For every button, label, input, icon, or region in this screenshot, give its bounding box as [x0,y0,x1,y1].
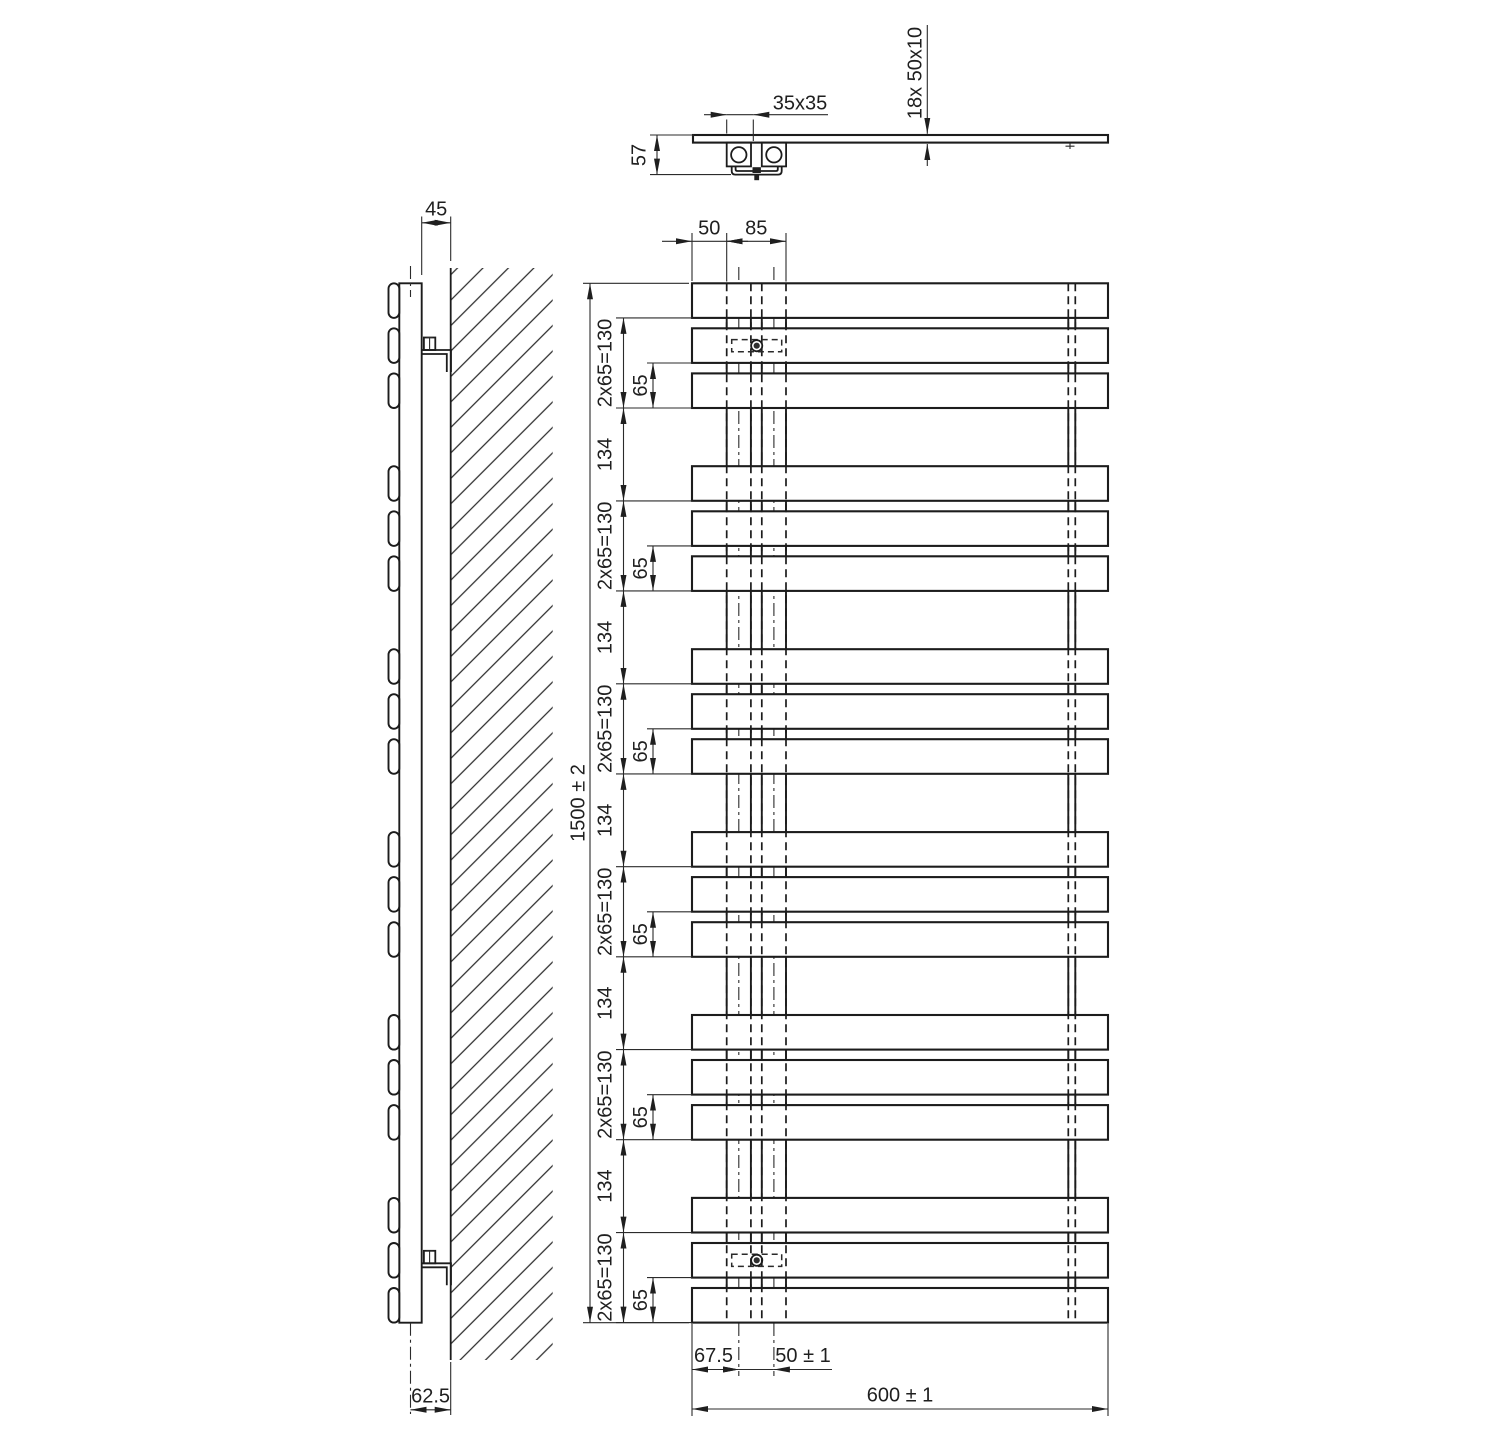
radiator-bar-side [389,556,400,591]
front-view-bars [692,283,1108,1322]
dim-bracket-height-label: 57 [629,144,651,166]
radiator-bar-front [692,832,1108,867]
radiator-bar-front [692,649,1108,684]
radiator-bar-side [389,922,400,957]
dim-group-span-label: 2x65=130 [595,502,617,590]
radiator-bar-front [692,283,1108,318]
dim-axis-wall-offset: 62.5 [411,1362,451,1415]
dim-axis-spacing-label: 50 ± 1 [775,1345,830,1367]
dim-group-gap-label: 134 [595,987,617,1020]
radiator-bar-front [692,556,1108,591]
dim-group-span-label: 2x65=130 [595,319,617,407]
dim-bar-pitch-label: 65 [630,1289,652,1311]
dim-group-gap-label: 134 [595,1169,617,1202]
front-view-tubes-hidden [727,283,1076,1322]
radiator-bar-side [389,877,400,912]
side-bracket-screw-detail [427,1251,433,1264]
dim-edge-to-axis-label: 67.5 [694,1345,733,1367]
dim-chain: 2x65=1301342x65=1301342x65=1301342x65=13… [595,318,693,1323]
side-bracket-screw-detail [427,338,433,351]
dim-axis-wall-offset-label: 62.5 [411,1386,450,1408]
dim-bar-section: 18x 50x10 [905,25,928,166]
radiator-bar-front [692,1288,1108,1323]
dim-tube-zone-label: 85 [745,218,767,240]
radiator-bar-side [389,1288,400,1323]
radiator-bar-side [389,832,400,867]
dim-bar-pitch-label: 65 [630,1106,652,1128]
radiator-bar-side [389,1060,400,1095]
dim-total-width-label: 600 ± 1 [867,1385,934,1407]
radiator-bar-front [692,511,1108,546]
dim-total-height: 1500 ± 2 [568,283,690,1322]
radiator-bar-front [692,466,1108,501]
radiator-bar-side [389,373,400,408]
dim-bar-section-label: 18x 50x10 [905,27,927,119]
wall-hatching [451,268,553,1360]
drawing-canvas: 57 35x35 18x 50x10 [0,0,1500,1437]
bracket-screw [753,167,761,173]
dim-tube-size: 35x35 [704,93,828,142]
radiator-bar-side [389,1198,400,1233]
radiator-bar-side [389,511,400,546]
radiator-bar-side [389,1105,400,1140]
drawing-page: 57 35x35 18x 50x10 [0,0,1500,1437]
dim-total-height-label: 1500 ± 2 [568,764,590,842]
dim-group-span-label: 2x65=130 [595,685,617,773]
dim-group-gap-label: 134 [595,804,617,837]
top-view-bar-plate [693,135,1108,143]
dim-bar-pitch-label: 65 [630,740,652,762]
side-wall-bracket-inner [422,354,447,372]
side-view: 45 62.5 [389,199,553,1416]
dim-tube-wall-gap-label: 45 [425,199,447,221]
dim-bar-pitch-label: 65 [630,557,652,579]
dim-bar-pitch-label: 65 [630,923,652,945]
side-view-collector-tube [399,283,421,1322]
radiator-bar-side [389,1243,400,1278]
dim-group-span-label: 2x65=130 [595,868,617,956]
bracket-screw-tip [754,175,759,181]
dim-tube-wall-gap: 45 [422,199,451,276]
side-view-wall-brackets [422,338,451,1286]
radiator-bar-front [692,1060,1108,1095]
front-bracket-screw-head [754,1257,760,1263]
radiator-bar-front [692,877,1108,912]
front-view: 50 85 1500 ± 2 2x65=1301342x65=1301342x6… [568,218,1109,1417]
dim-tube-size-label: 35x35 [773,93,828,115]
radiator-bar-front [692,1198,1108,1233]
radiator-bar-side [389,466,400,501]
dim-group-gap-label: 134 [595,621,617,654]
top-view-collector-tubes [727,143,786,167]
dim-top-tubes: 50 85 [662,218,786,282]
radiator-bar-front [692,922,1108,957]
radiator-bar-side [389,328,400,363]
dim-bottom: 67.5 50 ± 1 600 ± 1 [692,1324,1108,1416]
radiator-bar-side [389,739,400,774]
top-view-wall-bracket [732,166,782,180]
radiator-bar-front [692,739,1108,774]
side-wall-bracket-inner [422,1267,447,1285]
radiator-bar-front [692,1105,1108,1140]
front-bracket-screw-head [754,343,760,349]
dim-group-span-label: 2x65=130 [595,1233,617,1321]
radiator-bar-front [692,694,1108,729]
dim-edge-to-tube-label: 50 [698,218,720,240]
radiator-bar-front [692,373,1108,408]
radiator-bar-side [389,649,400,684]
dim-group-gap-label: 134 [595,438,617,471]
dim-group-span-label: 2x65=130 [595,1050,617,1138]
radiator-bar-side [389,1015,400,1050]
top-view: 57 35x35 18x 50x10 [629,25,1109,180]
radiator-bar-front [692,1015,1108,1050]
radiator-bar-side [389,694,400,729]
dim-bar-pitch-label: 65 [630,374,652,396]
radiator-bar-side [389,283,400,318]
side-view-bars [389,283,400,1322]
